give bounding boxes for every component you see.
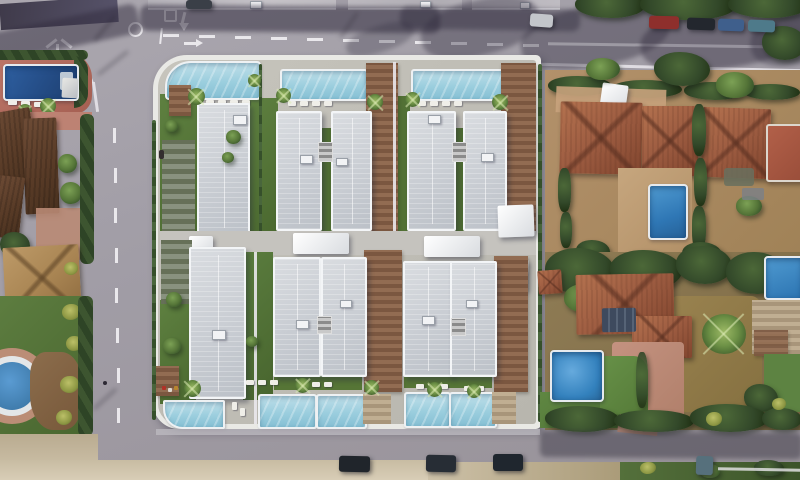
hedge [259, 64, 262, 232]
hedge-row [614, 410, 694, 432]
roof-box [233, 115, 247, 125]
sidewalk [156, 429, 540, 435]
unit-pool [258, 394, 317, 429]
cypress [560, 212, 572, 248]
chair [174, 386, 178, 390]
townhouse-roof [331, 111, 372, 231]
roof-box [422, 316, 435, 325]
lawn [243, 252, 273, 400]
tree [166, 292, 182, 307]
center-dash [113, 128, 116, 143]
villa-roof [642, 106, 698, 176]
sun-lounger [232, 402, 237, 410]
garden-item [724, 168, 754, 186]
hedge-wall [80, 114, 94, 264]
car [530, 13, 554, 28]
roof-box [428, 115, 441, 124]
swimming-pool [550, 350, 604, 402]
sun-lounger [454, 101, 462, 106]
hedge-wall [78, 296, 93, 436]
cypress [692, 104, 706, 156]
roof-box [296, 320, 309, 329]
sun-lounger [246, 380, 254, 385]
center-dash [115, 288, 118, 303]
roof-box [212, 330, 226, 340]
sun-lounger [270, 380, 278, 385]
roof-box [481, 153, 494, 162]
deck [492, 392, 516, 424]
stairs [317, 316, 332, 334]
canopy [497, 204, 534, 237]
sun-lounger [312, 382, 320, 387]
unit-pool [163, 400, 225, 429]
pergola [754, 330, 788, 356]
tree [60, 182, 82, 204]
car [718, 19, 744, 32]
swimming-pool [764, 256, 800, 300]
hedge-row [690, 404, 768, 432]
hedge [538, 64, 542, 422]
sun-lounger [324, 101, 332, 106]
palm-tree [492, 94, 508, 110]
solar-panels [602, 308, 636, 333]
sun-lounger [442, 101, 450, 106]
cypress [694, 158, 707, 206]
center-dash [114, 168, 117, 183]
stairs [318, 142, 333, 162]
hedge [636, 352, 648, 408]
car [748, 20, 775, 33]
lane-dash [199, 35, 215, 38]
cypress [558, 168, 571, 212]
canopy [424, 236, 480, 257]
palm-tree [405, 92, 420, 107]
roof-corner [537, 269, 563, 295]
terrace [162, 140, 195, 234]
tree [226, 130, 241, 144]
scooter [159, 150, 164, 159]
sun-lounger [324, 382, 332, 387]
roof-box [340, 300, 352, 308]
chair [162, 386, 166, 390]
palm-tree [184, 380, 201, 397]
sun-lounger [258, 380, 266, 385]
townhouse-roof [273, 257, 321, 377]
center-dash [116, 328, 119, 343]
straight-arrow-head [196, 39, 203, 47]
palm-tree [276, 88, 291, 103]
townhouse-roof [276, 111, 322, 231]
palm-tree [248, 74, 261, 87]
road-shadow [540, 431, 800, 459]
van [696, 456, 714, 476]
lane-dash [163, 34, 179, 37]
unit-pool [280, 69, 368, 101]
tree [586, 58, 620, 80]
palm-tree [467, 384, 481, 398]
chair [168, 388, 172, 392]
sun-lounger [416, 384, 424, 389]
tree [165, 120, 178, 132]
lane-dash [307, 38, 323, 41]
stairs [452, 142, 467, 162]
car [687, 18, 715, 31]
palm-tree [364, 380, 379, 395]
roof-box [466, 300, 478, 308]
swimming-pool [648, 184, 688, 240]
sun-lounger [8, 100, 17, 105]
car [339, 456, 370, 473]
stairs [451, 318, 466, 336]
tree [246, 336, 258, 347]
wood-deck [364, 250, 402, 392]
lamp-post [103, 381, 107, 385]
palm-tree [427, 382, 442, 397]
car [426, 455, 456, 473]
lane-dash [271, 37, 287, 40]
car [186, 0, 212, 9]
tree [676, 246, 732, 284]
aerial-site-photo [0, 0, 800, 480]
center-dash [117, 408, 120, 423]
sun-lounger [312, 101, 320, 106]
sun-lounger [430, 101, 438, 106]
palm-tree [188, 88, 205, 105]
townhouse-roof [407, 111, 456, 231]
hedge-row [545, 406, 619, 432]
deck [363, 394, 391, 424]
straight-arrow [184, 42, 196, 45]
tree [58, 154, 77, 173]
flat-roof [766, 124, 800, 182]
house-roof [22, 117, 59, 214]
car [493, 454, 523, 471]
scrub [428, 462, 628, 480]
pool-hut [61, 78, 78, 99]
car [649, 16, 679, 30]
roof-box [336, 158, 348, 166]
palm-tree [367, 94, 383, 110]
wood-deck [494, 256, 528, 392]
center-dash [115, 248, 118, 263]
separator-wall [393, 62, 396, 232]
villa-roof [559, 101, 642, 174]
garden-item [742, 188, 764, 200]
tree [222, 152, 234, 163]
palm-tree [295, 378, 310, 393]
townhouse-roof [189, 247, 246, 399]
hedge-row [762, 408, 800, 430]
palm-tree [702, 314, 746, 354]
tree [163, 338, 181, 354]
tree [716, 72, 754, 98]
tree [654, 52, 710, 86]
lane-dash [235, 36, 251, 39]
sun-lounger [300, 101, 308, 106]
unit-pool [316, 394, 367, 429]
center-dash [114, 208, 117, 223]
canopy [293, 233, 349, 254]
center-dash [117, 368, 120, 383]
sun-lounger [240, 408, 245, 416]
roof-box [300, 155, 313, 164]
